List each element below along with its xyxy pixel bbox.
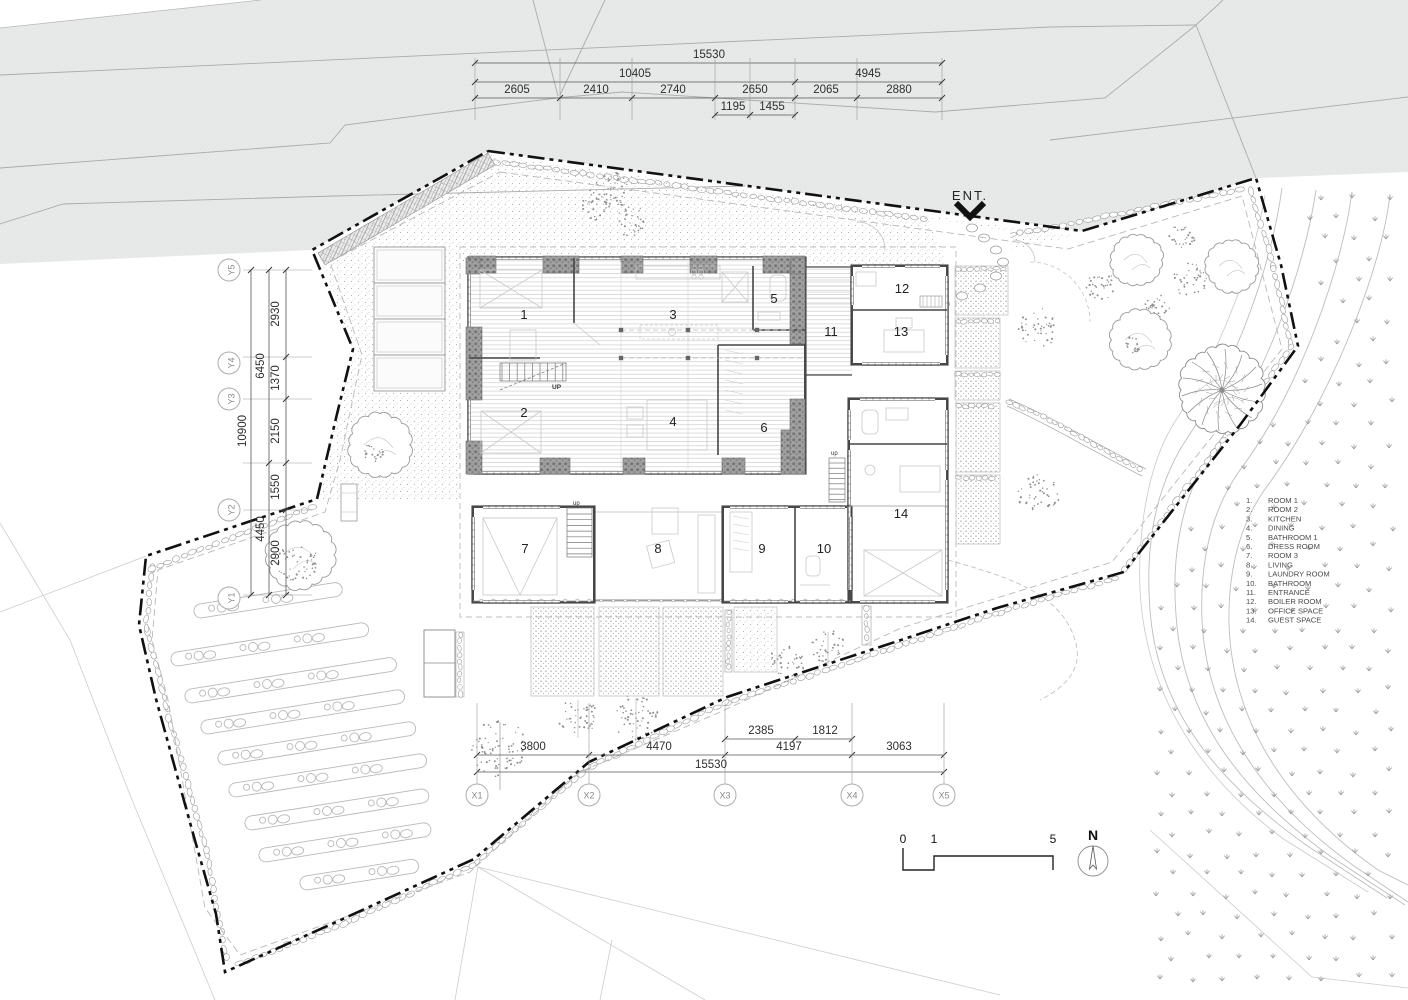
svg-text:up: up (831, 451, 838, 457)
svg-text:ENT.: ENT. (952, 188, 988, 203)
svg-text:X4: X4 (846, 791, 857, 801)
svg-text:13.: 13. (1246, 606, 1257, 615)
svg-text:2: 2 (520, 405, 527, 420)
svg-text:Y2: Y2 (226, 504, 236, 515)
svg-text:3063: 3063 (886, 741, 912, 753)
svg-text:2650: 2650 (742, 84, 768, 96)
svg-text:UP: UP (552, 384, 562, 391)
svg-text:X1: X1 (471, 791, 482, 801)
svg-text:10405: 10405 (619, 68, 651, 80)
svg-text:7: 7 (521, 541, 528, 556)
svg-text:LAUNDRY ROOM: LAUNDRY ROOM (1268, 570, 1330, 579)
svg-text:4.: 4. (1246, 524, 1252, 533)
svg-text:2900: 2900 (270, 540, 282, 566)
svg-text:9.: 9. (1246, 570, 1252, 579)
svg-text:8: 8 (654, 541, 661, 556)
svg-text:3800: 3800 (520, 741, 546, 753)
svg-text:Y5: Y5 (226, 264, 236, 275)
svg-text:5: 5 (1050, 832, 1057, 846)
svg-text:4470: 4470 (646, 741, 672, 753)
svg-text:3.: 3. (1246, 514, 1252, 523)
svg-text:0: 0 (900, 832, 907, 846)
svg-text:1.: 1. (1246, 496, 1252, 505)
svg-text:10900: 10900 (237, 415, 249, 447)
svg-text:6450: 6450 (255, 353, 267, 379)
svg-text:OFFICE SPACE: OFFICE SPACE (1268, 606, 1323, 615)
svg-text:2880: 2880 (886, 84, 912, 96)
svg-text:ENTRANCE: ENTRANCE (1268, 588, 1310, 597)
svg-text:2.: 2. (1246, 505, 1252, 514)
svg-text:4450: 4450 (255, 516, 267, 542)
svg-text:1812: 1812 (812, 725, 838, 737)
svg-text:4945: 4945 (855, 68, 881, 80)
svg-text:14.: 14. (1246, 616, 1257, 625)
svg-text:BOILER ROOM: BOILER ROOM (1268, 597, 1322, 606)
svg-text:1455: 1455 (759, 101, 785, 113)
svg-text:DRESS ROOM: DRESS ROOM (1268, 542, 1320, 551)
svg-text:2150: 2150 (270, 418, 282, 444)
svg-text:KITCHEN: KITCHEN (1268, 514, 1301, 523)
svg-text:1195: 1195 (721, 101, 746, 113)
svg-text:1: 1 (520, 307, 527, 322)
svg-text:6: 6 (760, 420, 767, 435)
svg-text:X3: X3 (719, 791, 730, 801)
svg-text:8.: 8. (1246, 560, 1252, 569)
svg-text:GUEST SPACE: GUEST SPACE (1268, 616, 1321, 625)
svg-text:10.: 10. (1246, 579, 1257, 588)
svg-text:9: 9 (758, 541, 765, 556)
svg-text:1: 1 (931, 832, 938, 846)
svg-text:5.: 5. (1246, 533, 1252, 542)
svg-text:ROOM 2: ROOM 2 (1268, 505, 1298, 514)
svg-text:up: up (573, 501, 580, 507)
svg-text:11.: 11. (1246, 588, 1256, 597)
svg-text:LIVING: LIVING (1268, 560, 1293, 569)
svg-text:BATHROOM: BATHROOM (1268, 579, 1311, 588)
svg-text:2410: 2410 (583, 84, 609, 96)
svg-text:11: 11 (824, 324, 838, 339)
svg-text:2740: 2740 (660, 84, 686, 96)
svg-text:6.: 6. (1246, 542, 1252, 551)
svg-text:2605: 2605 (504, 84, 530, 96)
svg-text:X2: X2 (583, 791, 594, 801)
svg-text:1370: 1370 (270, 365, 282, 391)
svg-text:7.: 7. (1246, 551, 1252, 560)
svg-text:5: 5 (770, 291, 777, 306)
svg-text:13: 13 (894, 324, 908, 339)
svg-text:12: 12 (895, 281, 909, 296)
svg-text:ROOM 3: ROOM 3 (1268, 551, 1298, 560)
svg-text:N: N (1088, 827, 1098, 843)
svg-text:DINING: DINING (1268, 524, 1295, 533)
svg-text:Y3: Y3 (226, 393, 236, 404)
svg-text:14: 14 (894, 506, 908, 521)
svg-text:2930: 2930 (270, 301, 282, 327)
svg-text:X5: X5 (938, 791, 949, 801)
svg-text:4197: 4197 (776, 741, 802, 753)
svg-text:BATHROOM 1: BATHROOM 1 (1268, 533, 1318, 542)
svg-text:ROOM 1: ROOM 1 (1268, 496, 1298, 505)
svg-text:Y4: Y4 (226, 357, 236, 368)
svg-text:1550: 1550 (270, 474, 282, 500)
svg-text:Y1: Y1 (226, 592, 236, 603)
svg-text:15530: 15530 (693, 49, 725, 61)
svg-text:15530: 15530 (695, 759, 727, 771)
svg-text:2385: 2385 (748, 725, 774, 737)
svg-text:12.: 12. (1246, 597, 1257, 606)
svg-text:2065: 2065 (813, 84, 839, 96)
svg-text:4: 4 (669, 414, 676, 429)
svg-text:3: 3 (669, 307, 676, 322)
svg-text:10: 10 (817, 541, 831, 556)
